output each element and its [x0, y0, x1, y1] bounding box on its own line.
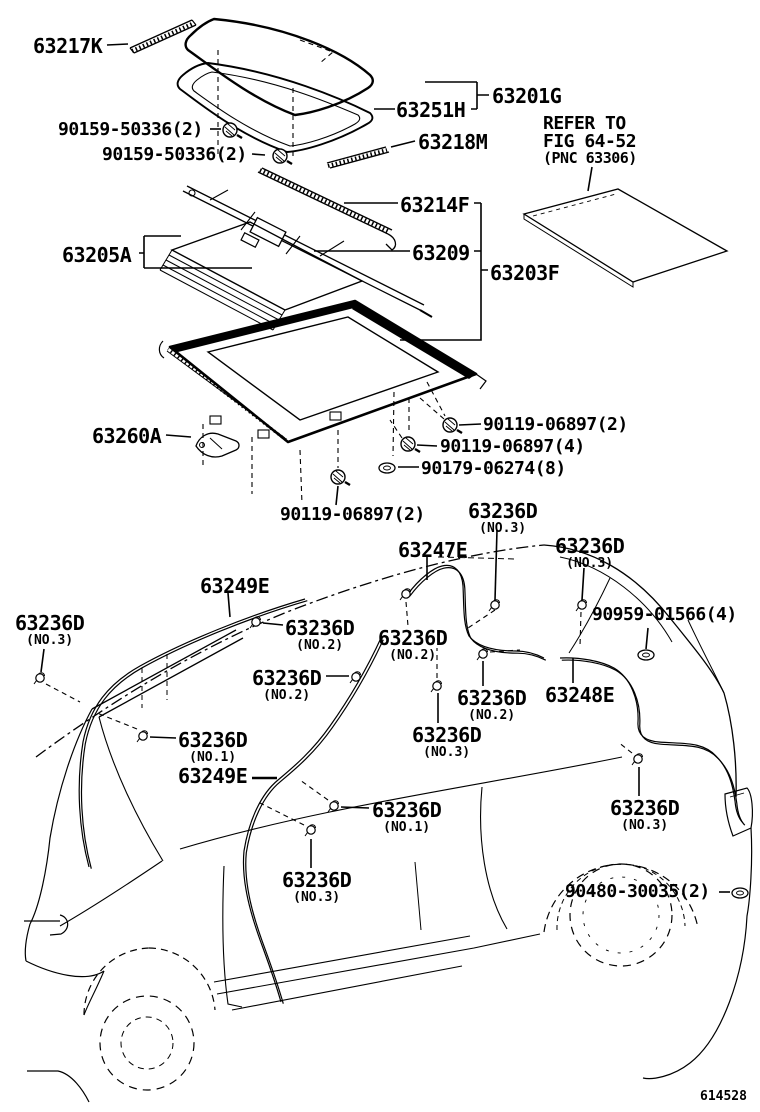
part-label-63217k: 63217K	[33, 36, 102, 57]
fastener-label-90119-06897-2b: 90119-06897(2)	[280, 506, 425, 525]
fastener-label-90179-06274-8: 90179-06274(8)	[421, 460, 566, 479]
grommet-icon	[638, 650, 654, 660]
part-label-63209: 63209	[412, 243, 470, 264]
fastener-label-90119-06897-2a: 90119-06897(2)	[483, 416, 628, 435]
fastener-label-90480-30035-2: 90480-30035(2)	[565, 883, 710, 902]
clip-icon	[137, 731, 148, 742]
clip-icon	[305, 825, 316, 836]
clip-label-63236d-no3-d: 63236D (NO.3)	[412, 725, 481, 760]
clip-icon	[632, 754, 643, 765]
grommet-icon	[732, 888, 748, 898]
part-label-63260a: 63260A	[92, 426, 161, 447]
part-label-63249e-b: 63249E	[178, 766, 247, 787]
refer-note: REFER TO FIG 64-52 (PNC 63306)	[543, 115, 637, 166]
part-label-63248e: 63248E	[545, 685, 614, 706]
clip-label-63236d-no3-f: 63236D (NO.3)	[282, 870, 351, 905]
clip-icon	[576, 600, 587, 611]
fastener-label-90119-06897-4: 90119-06897(4)	[440, 438, 585, 457]
clip-icon	[400, 589, 411, 600]
sunshade-63205a	[160, 222, 362, 330]
part-label-63203f: 63203F	[490, 263, 559, 284]
part-label-63247e: 63247E	[398, 540, 467, 561]
clip-icon	[34, 673, 45, 684]
fastener-label-90159-50336-b: 90159-50336(2)	[102, 146, 247, 165]
housing-frame-63203f	[159, 301, 486, 442]
fastener-label-90959-01566-4: 90959-01566(4)	[592, 606, 737, 625]
part-label-63201g: 63201G	[492, 86, 561, 107]
fastener-label-90159-50336-a: 90159-50336(2)	[58, 121, 203, 140]
clip-label-63236d-no3-c: 63236D (NO.3)	[15, 613, 84, 648]
clip-icon	[477, 649, 488, 660]
grommet-icon	[379, 463, 395, 473]
diagram-line-art	[0, 0, 760, 1112]
clip-icon	[489, 600, 500, 611]
parts-diagram-page: 63217K 90159-50336(2) 90159-50336(2) 632…	[0, 0, 760, 1112]
figure-code: 614528	[700, 1089, 747, 1104]
part-label-63214f: 63214F	[400, 195, 469, 216]
part-label-63249e-a: 63249E	[200, 576, 269, 597]
clip-label-63236d-no1-b: 63236D (NO.1)	[372, 800, 441, 835]
garnish-strip-63218m	[327, 147, 389, 168]
clip-label-63236d-no2-b: 63236D (NO.2)	[378, 628, 447, 663]
sunroof-glass-panel	[186, 19, 373, 160]
clip-label-63236d-no2-d: 63236D (NO.2)	[457, 688, 526, 723]
part-label-63218m: 63218M	[418, 132, 487, 153]
clip-label-63236d-no3-a: 63236D (NO.3)	[468, 501, 537, 536]
part-label-63251h: 63251H	[396, 100, 465, 121]
screw-icon	[331, 470, 350, 485]
part-label-63205a: 63205A	[62, 245, 131, 266]
clip-label-63236d-no2-a: 63236D (NO.2)	[285, 618, 354, 653]
clip-label-63236d-no3-e: 63236D (NO.3)	[610, 798, 679, 833]
clip-icon	[431, 681, 442, 692]
clip-label-63236d-no2-c: 63236D (NO.2)	[252, 668, 321, 703]
refer-note-line3: (PNC 63306)	[543, 151, 637, 166]
clip-label-63236d-no3-b: 63236D (NO.3)	[555, 536, 624, 571]
clip-label-63236d-no1-a: 63236D (NO.1)	[178, 730, 247, 765]
